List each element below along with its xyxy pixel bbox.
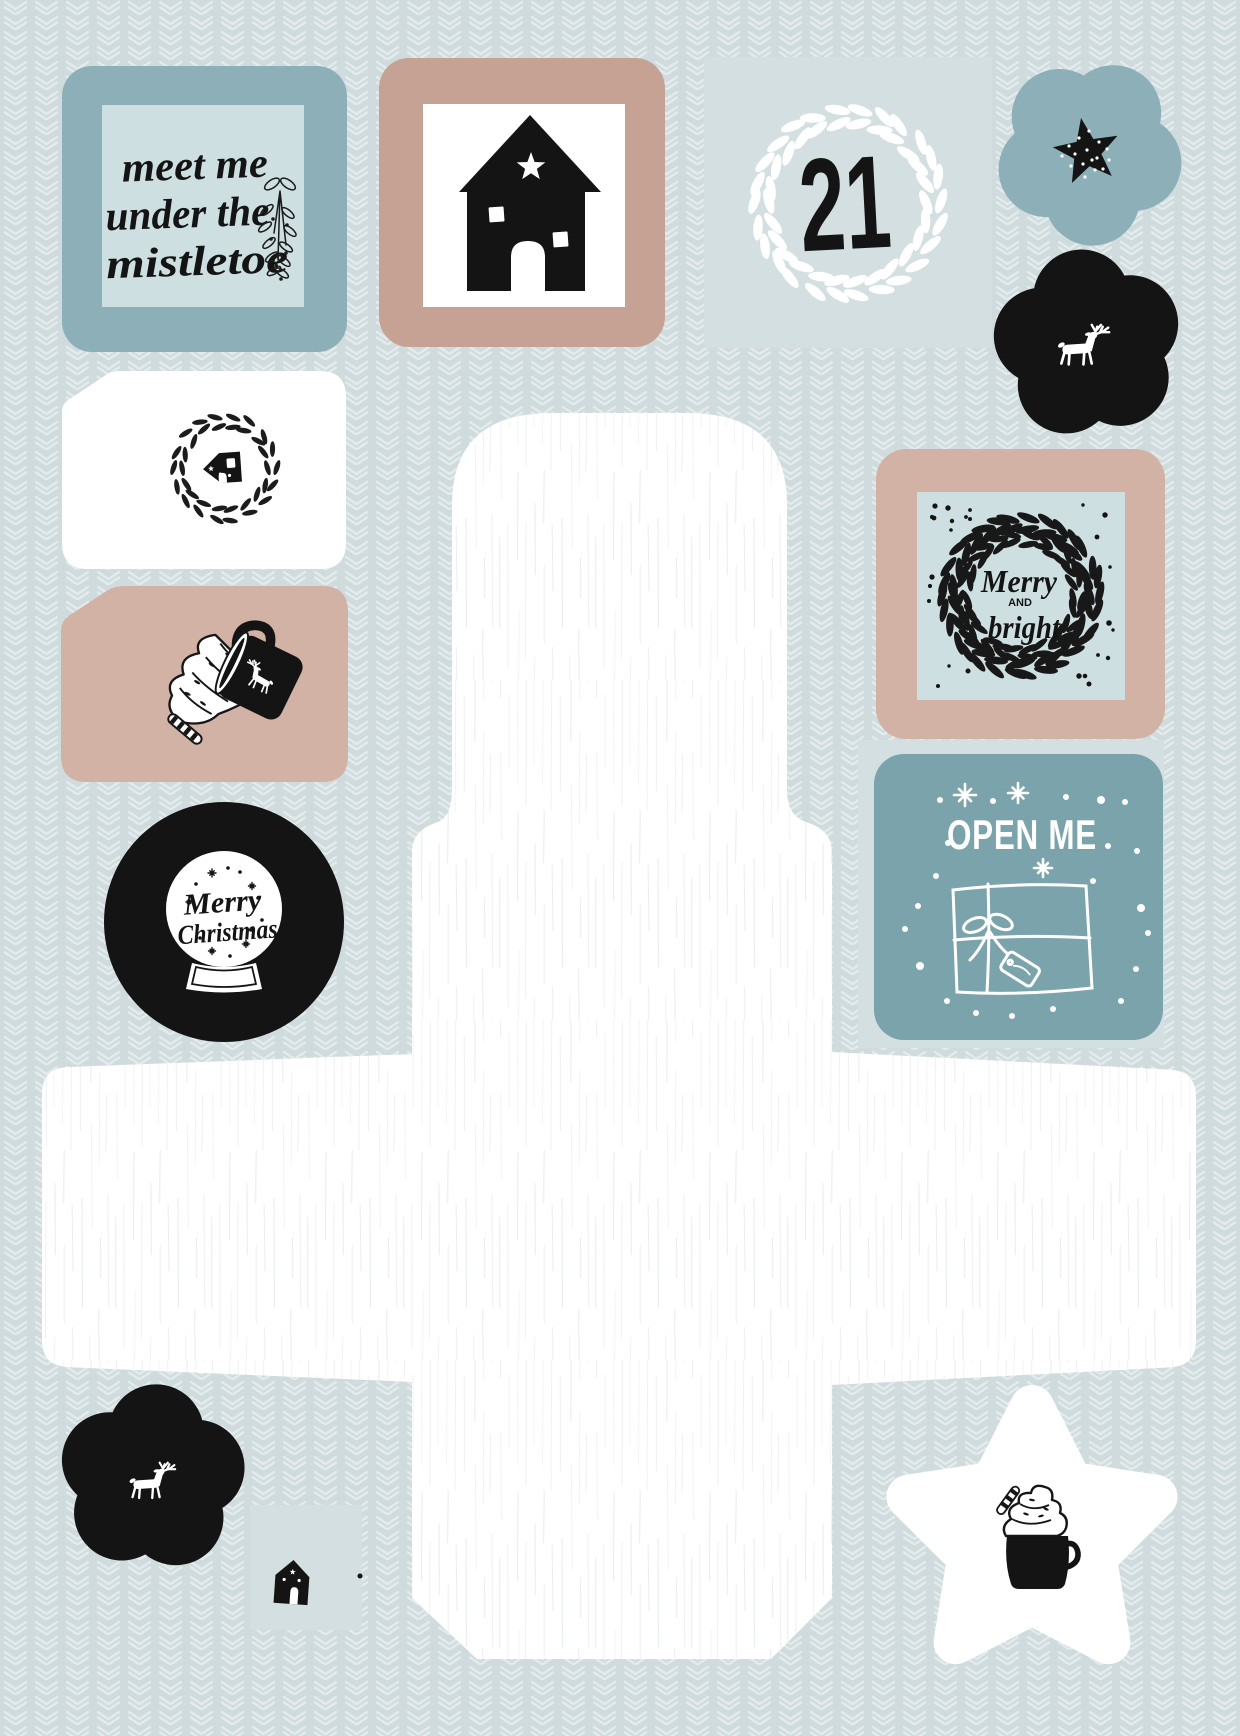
svg-text:OPEN ME: OPEN ME bbox=[947, 811, 1097, 858]
svg-text:meet me: meet me bbox=[121, 141, 269, 192]
svg-text:under the: under the bbox=[105, 189, 271, 241]
svg-text:mistletoe: mistletoe bbox=[105, 236, 288, 288]
svg-text:AND: AND bbox=[1008, 597, 1032, 609]
svg-text:Merry: Merry bbox=[980, 563, 1058, 599]
svg-text:bright: bright bbox=[988, 609, 1061, 645]
svg-text:21: 21 bbox=[796, 129, 895, 280]
